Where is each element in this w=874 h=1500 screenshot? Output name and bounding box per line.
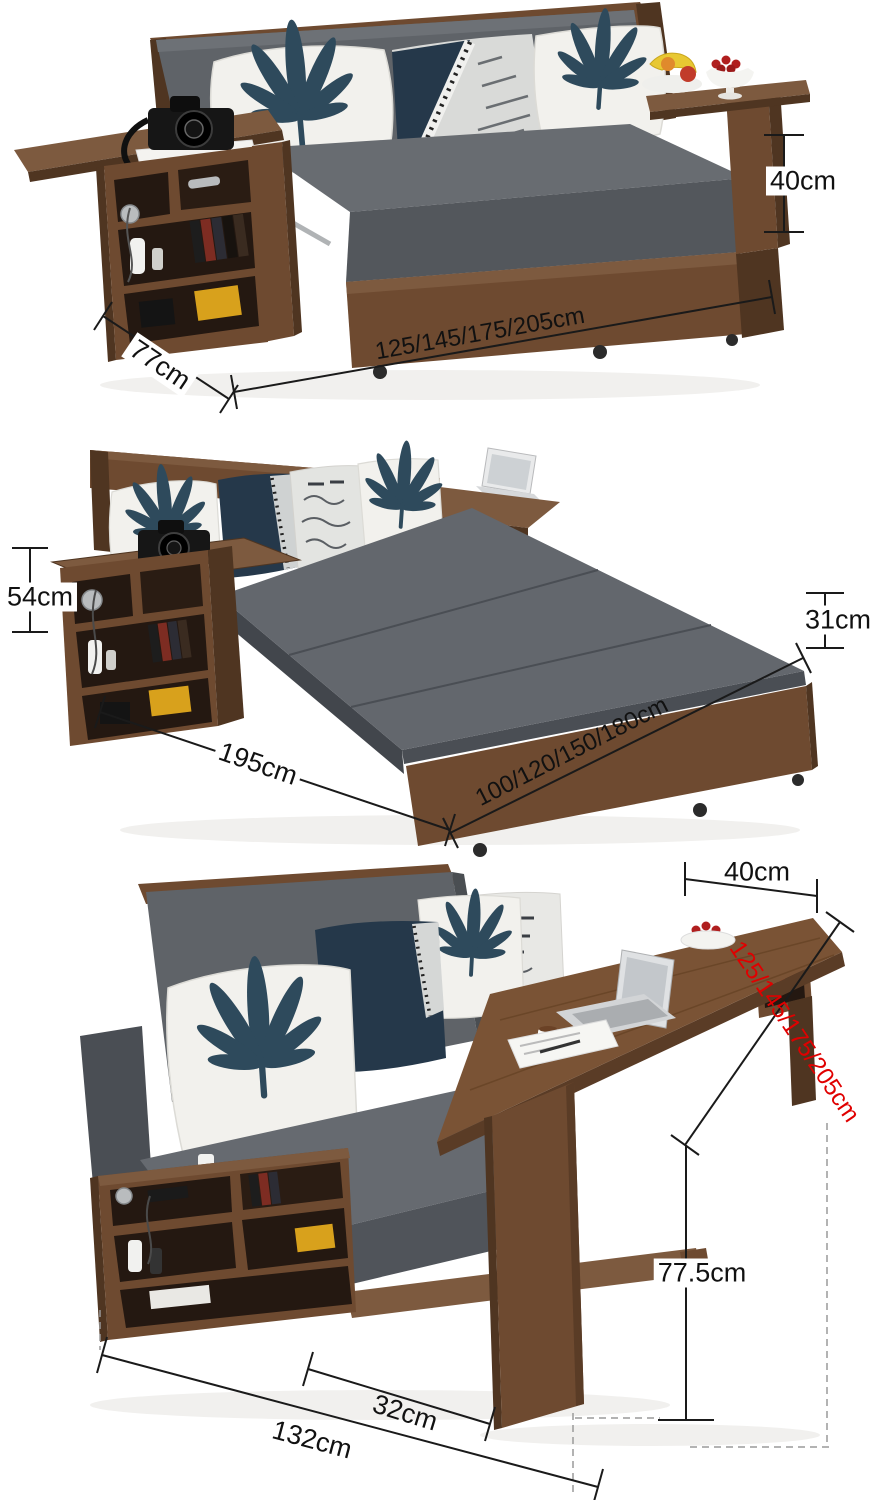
apple [680, 66, 696, 82]
floor-shadow [100, 370, 760, 400]
bottle [128, 1240, 142, 1272]
product-dimension-image: 40cm 77cm 125/145/175/205cm 54cm 31cm 19… [0, 0, 874, 1500]
hinge-knob [82, 590, 102, 610]
books [248, 1171, 281, 1206]
cherry-bowl [681, 922, 735, 950]
caster-wheel [693, 803, 707, 817]
bed-view [0, 430, 874, 870]
caster-wheel [593, 345, 607, 359]
hinge-knob [116, 1188, 132, 1204]
gold-box [149, 686, 192, 717]
black-box [139, 298, 176, 327]
armrest-cushion [80, 1026, 152, 1196]
storage-cabinet [90, 1148, 356, 1342]
dim-desk-height-label: 77.5cm [654, 1259, 751, 1288]
dim-bed-back-height-label: 54cm [3, 583, 77, 612]
jar [106, 650, 116, 670]
storage-cabinet [96, 146, 268, 362]
jar [152, 248, 163, 270]
floor-shadow [480, 1424, 820, 1446]
orange [661, 57, 675, 71]
dim-desk-depth-label: 40cm [724, 859, 790, 886]
caster-wheel [792, 774, 804, 786]
hinge-knob [121, 205, 139, 223]
desk-leg-panel [484, 1082, 584, 1430]
dim-bed-side-height-label: 31cm [801, 606, 874, 635]
gold-box [194, 285, 242, 321]
gold-box [295, 1224, 336, 1252]
caster-wheel [726, 334, 738, 346]
caster-wheel [473, 843, 487, 857]
books [189, 214, 248, 263]
sofa-view [0, 0, 874, 430]
left-armrest-shelf [14, 96, 330, 362]
dim-sofa-height-label: 40cm [766, 167, 840, 196]
